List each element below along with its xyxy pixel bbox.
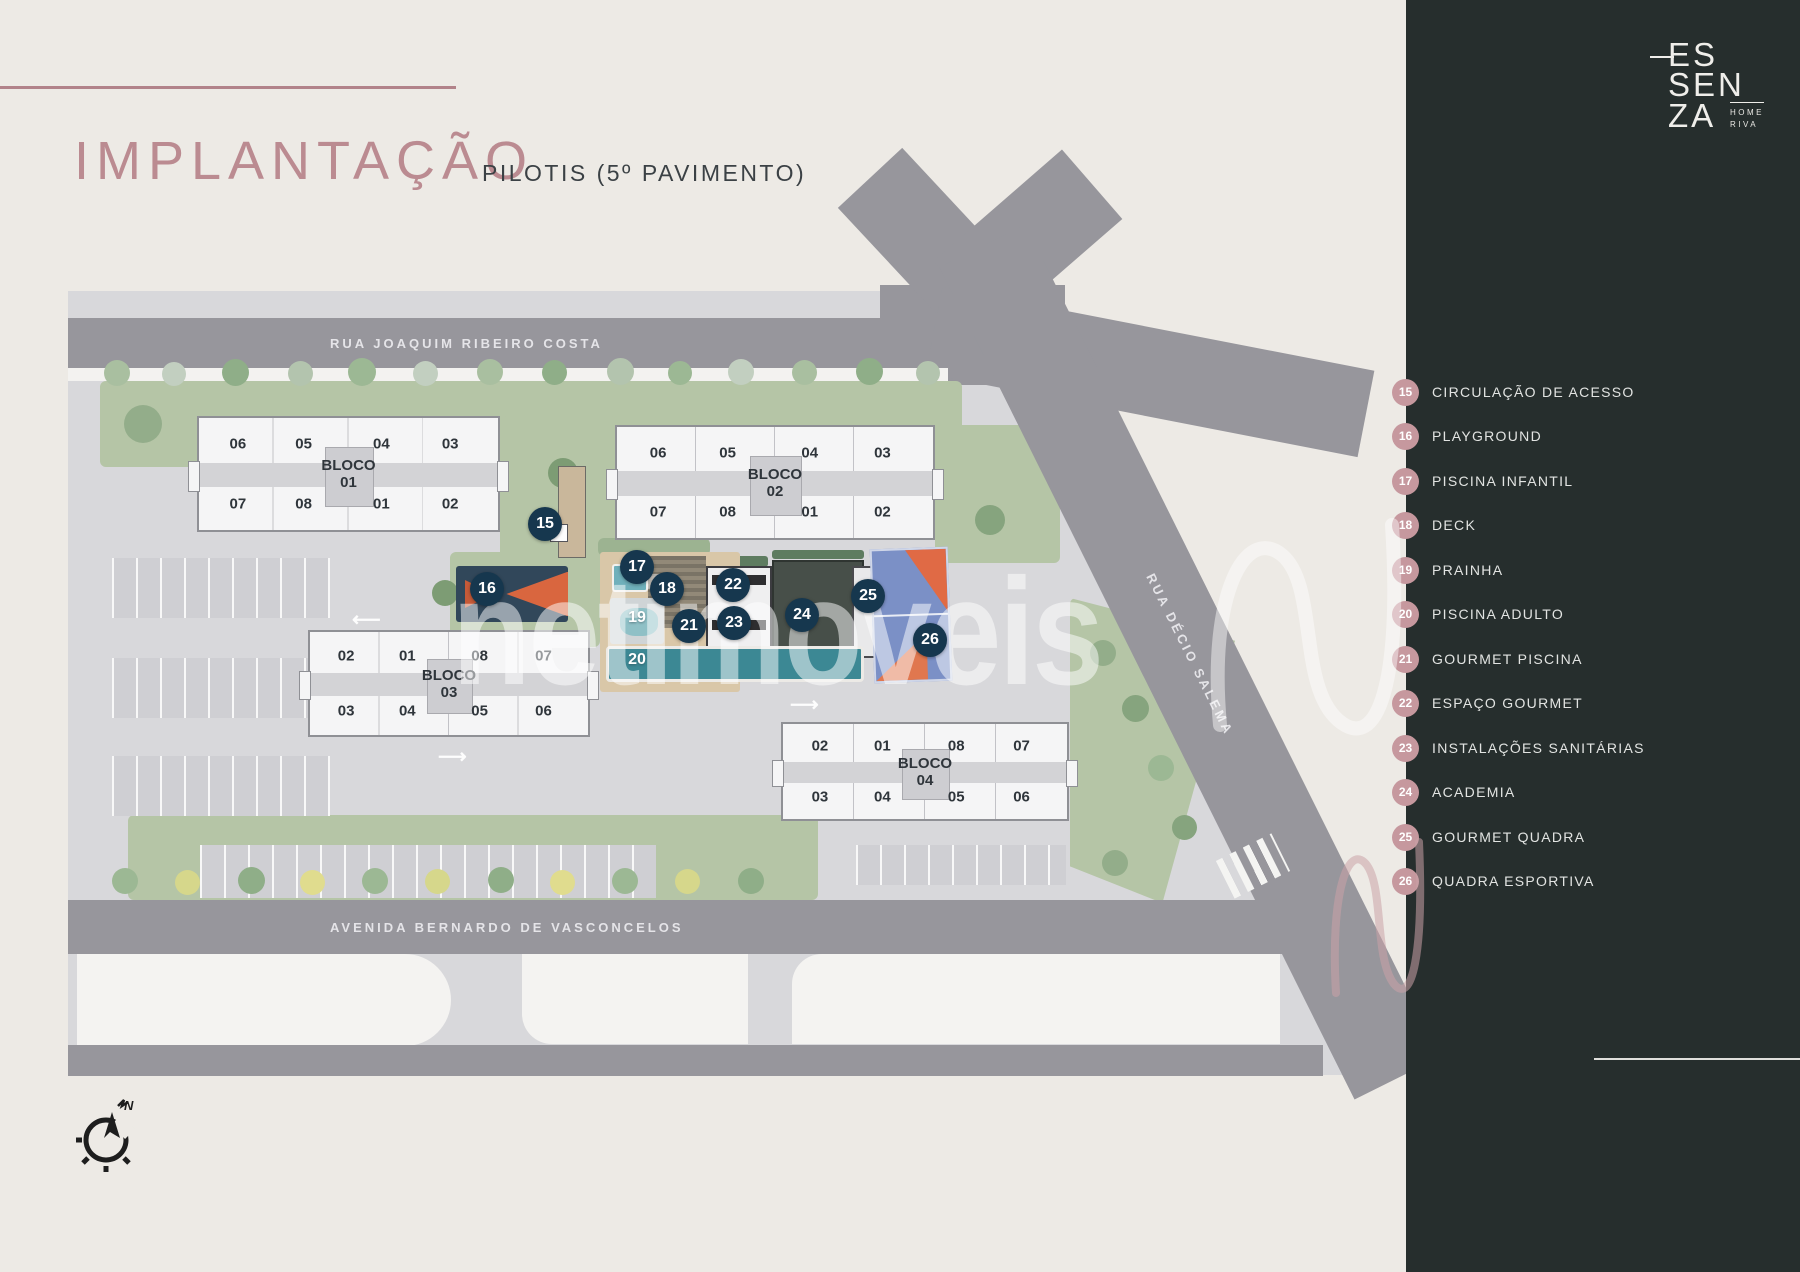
tree bbox=[413, 361, 438, 386]
tree bbox=[1172, 815, 1197, 840]
building-tab bbox=[497, 461, 509, 492]
podium-slab-2 bbox=[522, 954, 748, 1044]
road-avenida bbox=[68, 900, 1308, 954]
unit-label: 07 bbox=[650, 504, 667, 521]
parking-left-3 bbox=[112, 756, 330, 816]
unit-label: 04 bbox=[874, 789, 891, 806]
logo-subtext: HOME RIVA bbox=[1730, 102, 1764, 131]
map-marker-23: 23 bbox=[717, 606, 751, 640]
parking-right-row bbox=[856, 845, 1066, 885]
tree bbox=[1122, 695, 1149, 722]
building-tab bbox=[188, 461, 200, 492]
building-tab bbox=[772, 760, 784, 787]
tree bbox=[728, 359, 754, 385]
unit-label: 04 bbox=[373, 435, 390, 452]
sidebar: ES SEN ZA HOME RIVA 15 CIRCULAÇÃO DE ACE… bbox=[1406, 0, 1800, 1272]
page-subtitle: PILOTIS (5º PAVIMENTO) bbox=[482, 160, 806, 187]
tree bbox=[175, 870, 200, 895]
unit-label: 05 bbox=[295, 435, 312, 452]
title-accent-line bbox=[0, 86, 456, 89]
access-circulation-structure bbox=[558, 466, 586, 558]
unit-label: 08 bbox=[948, 737, 965, 754]
tree bbox=[738, 868, 764, 894]
unit-label: 06 bbox=[650, 444, 667, 461]
tree bbox=[1148, 755, 1174, 781]
legend-label: PISCINA ADULTO bbox=[1432, 606, 1564, 622]
unit-label: 05 bbox=[948, 789, 965, 806]
tree bbox=[222, 359, 249, 386]
tree bbox=[288, 361, 313, 386]
unit-label: 02 bbox=[338, 647, 355, 664]
unit-label: 02 bbox=[442, 496, 459, 513]
building-tab bbox=[1066, 760, 1078, 787]
tree bbox=[542, 360, 567, 385]
unit-label: 02 bbox=[812, 737, 829, 754]
unit-label: 05 bbox=[719, 444, 736, 461]
street-label-bottom: AVENIDA BERNARDO DE VASCONCELOS bbox=[330, 920, 684, 935]
unit-label: 03 bbox=[812, 789, 829, 806]
legend-item-25: 25 GOURMET QUADRA bbox=[1406, 823, 1585, 851]
tree bbox=[916, 361, 940, 385]
building-bloco-04: 02 01 08 07 03 04 05 06 BLOCO04 bbox=[781, 722, 1069, 821]
legend-label: QUADRA ESPORTIVA bbox=[1432, 873, 1595, 889]
tree bbox=[668, 361, 692, 385]
building-name: BLOCO04 bbox=[898, 754, 952, 789]
building-tab bbox=[932, 469, 944, 500]
parking-left-2 bbox=[112, 658, 330, 718]
tree bbox=[162, 362, 186, 386]
watermark-n-icon bbox=[1190, 465, 1440, 765]
unit-label: 04 bbox=[801, 444, 818, 461]
tree bbox=[607, 358, 634, 385]
unit-label: 01 bbox=[373, 496, 390, 513]
podium-slab-1 bbox=[77, 954, 451, 1046]
unit-label: 06 bbox=[230, 435, 247, 452]
map-marker-20: 20 bbox=[620, 643, 654, 677]
unit-label: 03 bbox=[442, 435, 459, 452]
legend-label: ESPAÇO GOURMET bbox=[1432, 695, 1583, 711]
map-marker-17: 17 bbox=[620, 550, 654, 584]
tree bbox=[362, 868, 388, 894]
unit-label: 01 bbox=[801, 504, 818, 521]
legend-label: INSTALAÇÕES SANITÁRIAS bbox=[1432, 740, 1645, 756]
parking-left-1 bbox=[112, 558, 330, 618]
map-marker-24: 24 bbox=[785, 598, 819, 632]
unit-label: 01 bbox=[874, 737, 891, 754]
tree bbox=[477, 359, 503, 385]
tree bbox=[792, 360, 817, 385]
legend-label: GOURMET PISCINA bbox=[1432, 651, 1583, 667]
podium-slab-3 bbox=[792, 954, 1280, 1044]
tree bbox=[856, 358, 883, 385]
map-marker-16: 16 bbox=[470, 572, 504, 606]
tree bbox=[675, 869, 700, 894]
building-bloco-02: 06 05 04 03 07 08 01 02 BLOCO02 bbox=[615, 425, 935, 540]
tree bbox=[300, 870, 325, 895]
map-marker-15: 15 bbox=[528, 507, 562, 541]
logo-sub-home: HOME bbox=[1730, 108, 1764, 117]
brand-logo: ES SEN ZA HOME RIVA bbox=[1668, 40, 1745, 131]
tree bbox=[425, 869, 450, 894]
map-marker-22: 22 bbox=[716, 568, 750, 602]
page: ⟵ ⟶ ⟶ RUA JOAQUIM RIBEIRO COSTA RUA DÉCI… bbox=[0, 0, 1800, 1272]
unit-label: 06 bbox=[1013, 789, 1030, 806]
unit-label: 04 bbox=[399, 703, 416, 720]
logo-sub-riva: RIVA bbox=[1730, 120, 1758, 129]
legend-item-15: 15 CIRCULAÇÃO DE ACESSO bbox=[1406, 378, 1635, 406]
logo-crossbar bbox=[1650, 56, 1674, 58]
legend-label: PISCINA INFANTIL bbox=[1432, 473, 1573, 489]
tree bbox=[550, 870, 575, 895]
street-label-top: RUA JOAQUIM RIBEIRO COSTA bbox=[330, 336, 603, 351]
map-marker-21: 21 bbox=[672, 609, 706, 643]
road-bottom-band bbox=[68, 1045, 1323, 1076]
page-title: IMPLANTAÇÃO bbox=[74, 130, 534, 192]
legend-item-26: 26 QUADRA ESPORTIVA bbox=[1406, 867, 1595, 895]
map-marker-19: 19 bbox=[620, 601, 654, 635]
unit-label: 07 bbox=[230, 496, 247, 513]
map-marker-26: 26 bbox=[913, 623, 947, 657]
map-marker-18: 18 bbox=[650, 572, 684, 606]
map-marker-25: 25 bbox=[851, 579, 885, 613]
legend-label: PRAINHA bbox=[1432, 562, 1503, 578]
unit-label: 02 bbox=[874, 504, 891, 521]
watermark-n-rose-icon bbox=[1322, 798, 1432, 1023]
tree bbox=[124, 405, 162, 443]
tree bbox=[238, 867, 265, 894]
unit-label: 03 bbox=[338, 703, 355, 720]
building-name: BLOCO01 bbox=[321, 457, 375, 492]
unit-label: 08 bbox=[295, 496, 312, 513]
drive-arrow-right-1: ⟶ bbox=[438, 747, 467, 767]
building-tab bbox=[299, 671, 311, 700]
tree bbox=[112, 868, 138, 894]
compass-north-label: N bbox=[124, 1098, 134, 1113]
tree bbox=[488, 867, 514, 893]
unit-label: 08 bbox=[719, 504, 736, 521]
legend-item-23: 23 INSTALAÇÕES SANITÁRIAS bbox=[1406, 734, 1645, 762]
legend-badge: 16 bbox=[1392, 423, 1419, 450]
legend-label: ACADEMIA bbox=[1432, 784, 1516, 800]
unit-label: 01 bbox=[399, 647, 416, 664]
tree bbox=[348, 358, 376, 386]
drive-arrow-left: ⟵ bbox=[352, 610, 381, 630]
legend-label: PLAYGROUND bbox=[1432, 428, 1542, 444]
building-name: BLOCO02 bbox=[748, 465, 802, 500]
legend-item-16: 16 PLAYGROUND bbox=[1406, 422, 1542, 450]
unit-label: 07 bbox=[1013, 737, 1030, 754]
tree bbox=[975, 505, 1005, 535]
legend-label: GOURMET QUADRA bbox=[1432, 829, 1585, 845]
building-bloco-01: 06 05 04 03 07 08 01 02 BLOCO01 bbox=[197, 416, 500, 532]
watermark-text: netimoveis bbox=[452, 556, 1101, 708]
unit-label: 03 bbox=[874, 444, 891, 461]
sidebar-divider-line bbox=[1594, 1058, 1800, 1060]
legend-badge: 15 bbox=[1392, 379, 1419, 406]
compass-icon: N bbox=[68, 1094, 148, 1174]
tree bbox=[612, 868, 638, 894]
legend-label: CIRCULAÇÃO DE ACESSO bbox=[1432, 384, 1635, 400]
building-tab bbox=[606, 469, 618, 500]
tree bbox=[1102, 850, 1128, 876]
tree bbox=[104, 360, 130, 386]
